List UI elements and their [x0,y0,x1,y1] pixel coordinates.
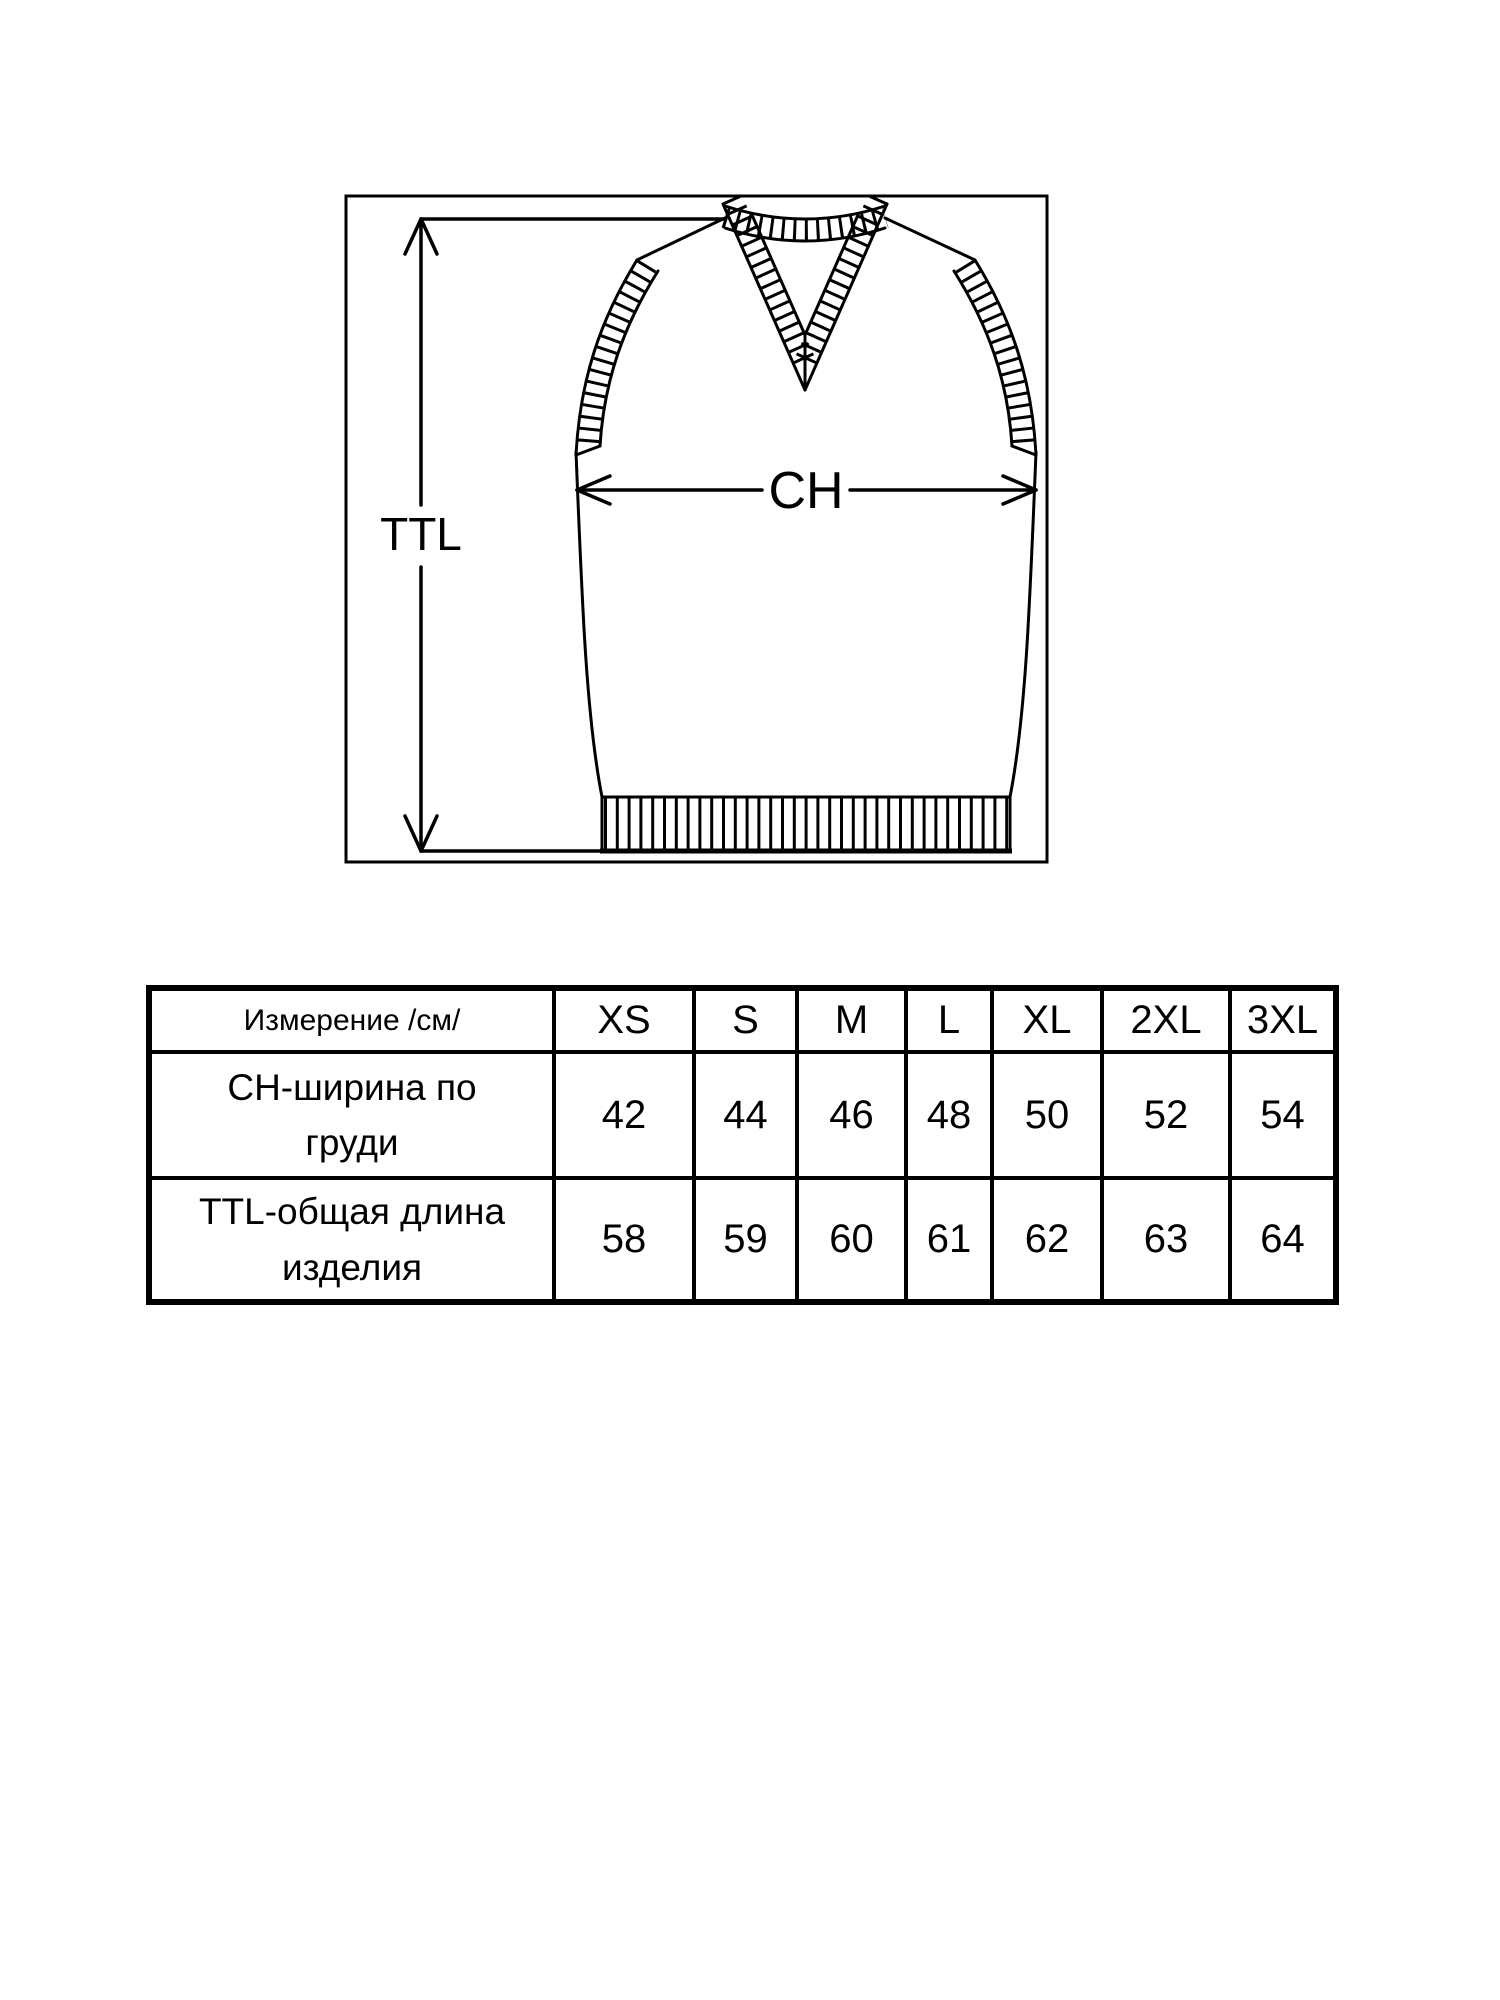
shoulder-seam-left [637,218,725,260]
value-cell: 46 [797,1052,906,1178]
armhole-left-outer-rail [576,260,637,455]
vneck-rib-band-right [805,209,874,362]
ttl-dimension-arrow: TTL [380,219,725,851]
size-header-cell-s: S [694,988,797,1052]
ch-dimension-arrow: CH [577,462,1036,520]
ttl-label: TTL [380,508,462,560]
size-header-cell-m: M [797,988,906,1052]
page-canvas: TTL CH Измерение /см/ XS S M L XL 2XL 3X… [0,0,1500,2000]
vest-outline [576,196,1036,851]
value-cell: 61 [906,1178,992,1302]
row-label-total-length: TTL-общая длина изделия [149,1178,554,1302]
size-header-cell-l: L [906,988,992,1052]
value-cell: 62 [992,1178,1102,1302]
ch-label: CH [768,462,843,520]
size-chart-table: Измерение /см/ XS S M L XL 2XL 3XL CH-ши… [146,985,1339,1305]
size-header-cell-xl: XL [992,988,1102,1052]
size-header-cell-xs: XS [554,988,694,1052]
size-header-cell-3xl: 3XL [1230,988,1336,1052]
table-header-row: Измерение /см/ XS S M L XL 2XL 3XL [149,988,1336,1052]
shoulder-seam-right [885,218,975,260]
side-seam-left [576,452,602,797]
table-row-chest-width: CH-ширина по груди 42 44 46 48 50 52 54 [149,1052,1336,1178]
value-cell: 63 [1102,1178,1230,1302]
armhole-left-cap [576,446,600,455]
armhole-right-outer-rail [975,260,1036,455]
vest-size-diagram: TTL CH [0,0,1500,920]
value-cell: 58 [554,1178,694,1302]
value-cell: 48 [906,1052,992,1178]
value-cell: 50 [992,1052,1102,1178]
value-cell: 59 [694,1178,797,1302]
value-cell: 64 [1230,1178,1336,1302]
armhole-right-cap [1012,446,1036,455]
table-row-total-length: TTL-общая длина изделия 58 59 60 61 62 6… [149,1178,1336,1302]
value-cell: 44 [694,1052,797,1178]
value-cell: 52 [1102,1052,1230,1178]
measurement-header-cell: Измерение /см/ [149,988,554,1052]
row-label-chest-width: CH-ширина по груди [149,1052,554,1178]
side-seam-right [1010,452,1036,797]
value-cell: 54 [1230,1052,1336,1178]
size-header-cell-2xl: 2XL [1102,988,1230,1052]
value-cell: 42 [554,1052,694,1178]
value-cell: 60 [797,1178,906,1302]
vneck-left-outer-rail [723,204,805,390]
